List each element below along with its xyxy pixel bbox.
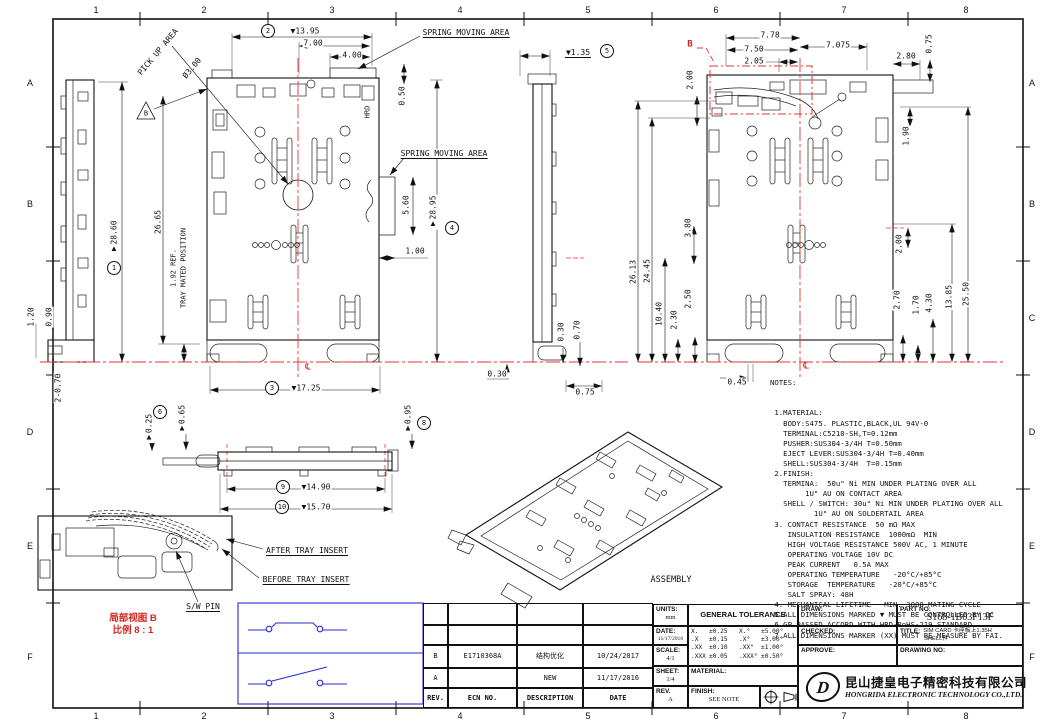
zone-label-A: A (1029, 78, 1035, 88)
balloon-5: 5 (600, 44, 614, 58)
rev-table-cell: NEW (517, 668, 583, 688)
zone-label-3: 3 (329, 711, 334, 721)
checked-label: CHECKED: (801, 628, 894, 636)
dim-1-70: 1.70 (912, 294, 921, 315)
draw-label: DRAW: (801, 606, 894, 614)
dim-2-70: 2.70 (893, 289, 902, 310)
tolerance-header: GENERAL TOLERANCE (700, 610, 785, 619)
rev-table-cell (583, 625, 653, 645)
finish-cell: FINISH: SEE NOTE (688, 686, 760, 708)
logo-letter: D (816, 679, 830, 696)
centerline-symbol-front: ℄ (304, 364, 312, 373)
assembly-label: ASSEMBLY (651, 575, 692, 585)
title-label: TITLE: (900, 628, 920, 636)
after-tray-insert-label: AFTER TRAY INSERT (266, 546, 348, 556)
dim-0-65: ▼0.65 (178, 404, 187, 434)
dim-17-25: ▼17.25 (291, 384, 322, 393)
dim-2-05: 2.05 (743, 57, 764, 66)
units-label: UNITS: (656, 606, 685, 614)
notes-title: NOTES: (770, 378, 1022, 388)
dim-0-95: ▼0.95 (404, 404, 413, 434)
title-line2: SHELL件 (924, 636, 1020, 644)
dim-2-80: 2.80 (895, 52, 916, 61)
dim-3-80: 3.80 (684, 217, 693, 238)
rev-table-cell (423, 625, 448, 645)
zone-label-E: E (1029, 541, 1035, 551)
zone-label-6: 6 (713, 711, 718, 721)
balloon-2: 2 (261, 24, 275, 38)
zone-label-C: C (1029, 313, 1036, 323)
rev-table-cell: A (423, 668, 448, 688)
balloon-1: 1 (107, 261, 121, 275)
dim-2-00-topleft: 2.00 (686, 69, 695, 90)
rev-table-cell: E1710368A (448, 645, 517, 668)
balloon-4: 4 (445, 221, 459, 235)
dim-0-25: ▼0.25 (145, 413, 154, 443)
dim-1-92-ref: 1.92 REF. (170, 248, 179, 288)
finish-value: SEE NOTE (691, 696, 757, 704)
scale-label: SCALE: (656, 647, 685, 655)
dim-0-75-top: 0.75 (925, 33, 934, 54)
dim-4-30: 4.30 (925, 292, 934, 313)
zone-label-4: 4 (457, 711, 462, 721)
zone-label-1: 1 (93, 5, 98, 15)
dim-2-50: 2.50 (684, 288, 693, 309)
rev-label: REV. (656, 688, 685, 696)
rev-table-cell: B (423, 645, 448, 668)
profile-view-linework (163, 447, 398, 476)
units-value: mm (656, 614, 685, 622)
dim-7-00: 7.00 (302, 39, 323, 48)
left-side-view (48, 80, 94, 362)
dim-15-70: ▼15.70 (301, 503, 332, 512)
dim-0-45: 0.45 (726, 378, 747, 387)
balloon-6: 6 (153, 405, 167, 419)
rev-value: A (656, 696, 685, 704)
company-name-cn: 昆山捷皇电子精密科技有限公司 (845, 672, 1021, 691)
switch-schematic (238, 603, 423, 704)
rev-table-header-cell: ECN NO. (448, 688, 517, 708)
dim-24-45: 24.45 (643, 258, 652, 284)
rev-table-cell (448, 625, 517, 645)
dim-0-90: 0.90 (45, 306, 54, 327)
zone-label-2: 2 (201, 711, 206, 721)
engineering-drawing-sheet: { "sheet": { "columns": ["1","2","3","4"… (0, 0, 1042, 723)
leader-lines (137, 36, 420, 602)
title-cell: TITLE: SIM CARD 卡座板上1.35H SHELL件 (897, 626, 1023, 645)
material-cell: MATERIAL: (688, 666, 798, 686)
checked-cell: CHECKED: (798, 626, 897, 645)
dim-7-50: 7.50 (743, 45, 764, 54)
dim-1-90: 1.90 (902, 125, 911, 146)
rev-cell: REV. A (653, 686, 688, 708)
dim-14-90: ▼14.90 (301, 483, 332, 492)
dim-5-60: 5.60 (402, 194, 411, 215)
zone-label-2: 2 (201, 5, 206, 15)
rev-table-cell (423, 603, 448, 625)
detail-b-ref-label: B (686, 41, 693, 50)
center-side-view (528, 74, 566, 362)
scale-value: 4/1 (656, 655, 685, 663)
zone-label-5: 5 (585, 711, 590, 721)
tolerance-values-cell: X.±0.25X.°±5.00°.X±0.15.X°±3.00°.XX±0.10… (688, 626, 798, 666)
dim-10-40: 10.40 (655, 301, 664, 327)
hrd-mark: HRD (364, 105, 373, 120)
zone-label-5: 5 (585, 5, 590, 15)
flag-b-label: B (143, 110, 149, 119)
dim-13-95: ▼13.95 (290, 27, 321, 36)
draw-cell: DRAW: (798, 604, 897, 626)
dim-13-85: 13.85 (945, 284, 954, 310)
approve-label: APPROVE: (801, 647, 894, 655)
balloon-3: 3 (265, 381, 279, 395)
part-no-cell: PART NO: S168-1B03F13F (897, 604, 1023, 626)
dim-26-65: 26.65 (154, 209, 163, 235)
tolerance-header-cell: GENERAL TOLERANCE (688, 604, 798, 626)
dim-0-50: 0.50 (398, 85, 407, 106)
rev-table-cell (583, 603, 653, 625)
zone-label-D: D (1029, 427, 1036, 437)
approve-cell: APPROVE: (798, 645, 897, 666)
sheet-label: SHEET: (656, 668, 685, 676)
tolerance-row: .XX±0.10.XX°±1.00° (691, 644, 795, 652)
zone-label-7: 7 (841, 711, 846, 721)
zone-label-E: E (27, 541, 33, 551)
dim-4-00: 4.00 (341, 51, 362, 60)
zone-label-3: 3 (329, 5, 334, 15)
rev-table-header-cell: DATE (583, 688, 653, 708)
revision-table: BE1710368A结构优化10/24/2017ANEW11/17/2016RE… (423, 603, 653, 708)
units-cell: UNITS: mm (653, 604, 688, 626)
zone-label-A: A (27, 78, 33, 88)
before-tray-insert-label: BEFORE TRAY INSERT (263, 575, 350, 585)
date-cell: DATE: 11/17/2016 (653, 626, 688, 645)
zone-label-D: D (27, 427, 34, 437)
company-name-en: HONGRIDA ELECTRONIC TECHNOLOGY CO.,LTD. (845, 690, 1021, 699)
dim-1-00: 1.00 (404, 247, 425, 256)
rev-table-cell (517, 603, 583, 625)
zone-label-6: 6 (713, 5, 718, 15)
detail-b-caption-scale: 比例 8 : 1 (113, 622, 154, 636)
date-label: DATE: (656, 628, 685, 636)
dim-25-50: 25.50 (962, 281, 971, 307)
balloon-10: 10 (275, 500, 289, 514)
zone-label-1: 1 (93, 711, 98, 721)
dim-2-30: 2.30 (670, 309, 679, 330)
material-label: MATERIAL: (691, 668, 795, 676)
dim-0-70-side: 0.70 (573, 319, 582, 340)
scale-cell: SCALE: 4/1 (653, 645, 688, 666)
sheet-value: 1/4 (656, 676, 685, 684)
projection-cell (760, 686, 798, 708)
date-value: 11/17/2016 (656, 636, 685, 644)
zone-label-F: F (1029, 652, 1035, 662)
zone-label-B: B (27, 199, 33, 209)
sheet-cell: SHEET: 1/4 (653, 666, 688, 686)
rev-table-cell: 10/24/2017 (583, 645, 653, 668)
balloon-8: 8 (417, 416, 431, 430)
dim-0-75-side: 0.75 (574, 388, 595, 397)
spring-moving-area-mid-label: SPRING MOVING AREA (401, 149, 488, 159)
part-no-value: S168-1B03F13F (900, 614, 1020, 622)
zone-label-4: 4 (457, 5, 462, 15)
tray-mated-position-label: TRAY MATED POSITION (180, 227, 189, 309)
detail-view-b-linework (38, 510, 232, 590)
rev-table-cell: 结构优化 (517, 645, 583, 668)
dim-2-0-70: 2-0.70 (54, 373, 63, 404)
dim-28-60: ▼28.60 (110, 219, 119, 254)
dim-0-30-side: 0.30 (557, 321, 566, 342)
rev-table-cell (517, 625, 583, 645)
dim-7-78: 7.78 (759, 31, 780, 40)
zone-label-F: F (27, 652, 33, 662)
third-angle-projection-icon (763, 689, 797, 705)
tolerance-row: .XXX±0.05.XXX°±0.50° (691, 653, 795, 661)
drawing-no-label: DRAWING NO: (900, 647, 1020, 655)
dim-28-95: ▼28.95 (429, 194, 438, 229)
rev-table-header-cell: REV. (423, 688, 448, 708)
rear-top-view (707, 75, 933, 362)
rev-table-cell: 11/17/2016 (583, 668, 653, 688)
zone-label-8: 8 (963, 711, 968, 721)
balloon-9: 9 (276, 480, 290, 494)
zone-label-B: B (1029, 199, 1035, 209)
dim-2-00-right: 2.00 (895, 233, 904, 254)
sw-pin-label: S/W PIN (186, 602, 220, 612)
dim-0-30-center: 0.30 (486, 370, 507, 379)
dim-7-075: 7.075 (825, 41, 851, 50)
dim-1-35: ▼1.35 (565, 48, 591, 58)
dim-1-20: 1.20 (27, 306, 36, 327)
spring-moving-area-top-label: SPRING MOVING AREA (423, 28, 510, 38)
dim-26-13: 26.13 (629, 259, 638, 285)
tolerance-rows: X.±0.25X.°±5.00°.X±0.15.X°±3.00°.XX±0.10… (691, 628, 795, 661)
zone-label-7: 7 (841, 5, 846, 15)
finish-label: FINISH: (691, 688, 757, 696)
rev-table-cell (448, 603, 517, 625)
drawing-no-cell: DRAWING NO: (897, 645, 1023, 666)
rev-table-cell (448, 668, 517, 688)
zone-label-8: 8 (963, 5, 968, 15)
tolerance-row: X.±0.25X.°±5.00° (691, 628, 795, 636)
rev-table-header-cell: DESCRIPTION (517, 688, 583, 708)
